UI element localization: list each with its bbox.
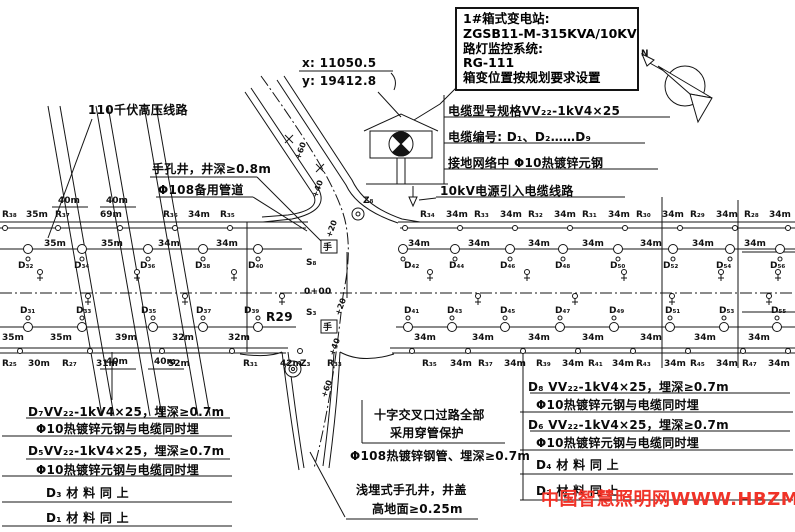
note-left-2-ground: Φ10热镀锌元钢与电缆同时埋 <box>36 461 199 478</box>
crossing-note-line1: 十字交叉口过路全部 <box>374 406 485 423</box>
cable-spec-label: 电缆型号规格VV₂₂-1kV4×25 <box>448 102 620 119</box>
coordinate-y-label: y: 19412.8 <box>302 74 376 88</box>
callout-line: 路灯监控系统: <box>463 42 631 57</box>
station-zero-label: 0+00 <box>304 287 332 297</box>
note-right-1-spec: D₈ VV₂₂-1kV4×25，埋深≥0.7m <box>528 378 729 395</box>
callout-line: RG-111 <box>463 56 631 71</box>
hand-well-label: 手孔井，井深≥0.8m <box>152 160 271 177</box>
spare-duct-label: Φ108备用管道 <box>158 181 244 198</box>
note-left-2-spec: D₅VV₂₂-1kV4×25，埋深≥0.7m <box>28 442 224 459</box>
note-right-1-ground: Φ10热镀锌元钢与电缆同时埋 <box>536 396 699 413</box>
crossing-note-line2: 采用穿管保护 <box>390 424 464 441</box>
hv-line-label: 110千伏高压线路 <box>88 101 188 118</box>
steel-pipe-label: Φ108热镀锌钢管、埋深≥0.7m <box>350 447 530 464</box>
shallow-well-line1: 浅埋式手孔井，井盖 <box>356 481 467 498</box>
note-left-1-spec: D₇VV₂₂-1kV4×25，埋深≥0.7m <box>28 403 224 420</box>
note-right-3: D₄ 材 料 同 上 <box>536 456 619 473</box>
cable-numbers-label: 电缆编号: D₁、D₂……D₉ <box>448 128 591 145</box>
watermark: 中国智慧照明网WWW.HBZM.CN <box>541 485 795 511</box>
callout-line: 箱变位置按规划要求设置 <box>463 71 631 86</box>
coordinate-x-label: x: 11050.5 <box>302 56 376 70</box>
note-left-1-ground: Φ10热镀锌元钢与电缆同时埋 <box>36 420 199 437</box>
engineering-drawing: R₃₈35mR₃₇69mR₃₆34mR₃₅R₃₄34mR₃₃34mR₃₂34mR… <box>0 0 795 532</box>
callout-line: 1#箱式变电站: <box>463 12 631 27</box>
shallow-well-line2: 高地面≥0.25m <box>372 500 463 517</box>
note-right-2-spec: D₆ VV₂₂-1kV4×25，埋深≥0.7m <box>528 416 729 433</box>
note-left-3: D₃ 材 料 同 上 <box>46 484 129 501</box>
ground-net-label: 接地网络中 Φ10热镀锌元钢 <box>448 154 603 171</box>
note-right-2-ground: Φ10热镀锌元钢与电缆同时埋 <box>536 434 699 451</box>
note-left-4: D₁ 材 料 同 上 <box>46 509 129 526</box>
callout-line: ZGSB11-M-315KVA/10KV <box>463 27 631 42</box>
power-in-label: 10kV电源引入电缆线路 <box>440 182 574 199</box>
annotation-overlay: 1#箱式变电站: ZGSB11-M-315KVA/10KV 路灯监控系统: RG… <box>0 0 795 532</box>
substation-callout-box: 1#箱式变电站: ZGSB11-M-315KVA/10KV 路灯监控系统: RG… <box>455 7 639 91</box>
r29-label: R29 <box>266 310 293 324</box>
